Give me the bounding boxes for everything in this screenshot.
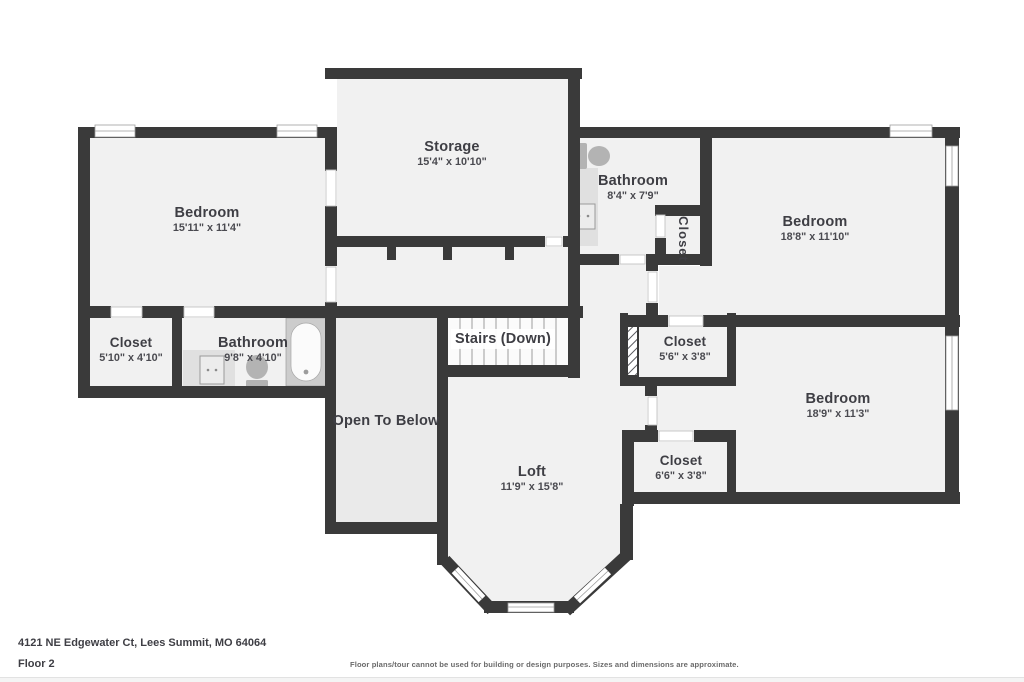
floor-plan-drawing (0, 0, 1024, 682)
floor-hallway-top (337, 247, 568, 307)
floor-bedroom-3 (735, 317, 945, 492)
floor-label: Floor 2 (18, 658, 55, 670)
window-icon (946, 336, 958, 410)
bottom-divider (0, 677, 1024, 682)
floor-bedroom-3-alcove (657, 385, 735, 432)
door-bathroom-1 (620, 255, 645, 264)
window-icon (277, 125, 317, 137)
toilet-icon (246, 355, 268, 388)
floor-open-to-below (336, 318, 437, 522)
floor-loft (448, 377, 622, 608)
window-icon (946, 146, 958, 186)
room-floors (90, 78, 945, 608)
floor-plan-page: Bedroom 15'11" x 11'4" Storage 15'4" x 1… (0, 0, 1024, 682)
door-bedroom-3 (648, 397, 657, 425)
door-closet-3 (659, 431, 693, 441)
floor-closet-3 (634, 442, 727, 492)
disclaimer-text: Floor plans/tour cannot be used for buil… (350, 660, 739, 669)
door-closet-1 (111, 307, 142, 317)
door-bedroom-1 (326, 267, 336, 302)
door-storage-bedroom-1 (326, 170, 336, 206)
floor-bedroom-1 (90, 137, 325, 307)
property-address: 4121 NE Edgewater Ct, Lees Summit, MO 64… (18, 637, 266, 649)
floor-storage (337, 78, 568, 236)
door-closet-hall (656, 215, 665, 237)
floor-closet-2 (638, 325, 727, 377)
door-closet-2 (669, 316, 703, 326)
bathtub-icon (286, 318, 326, 386)
window-icon (95, 125, 135, 137)
door-storage-hall (546, 237, 562, 246)
floor-bedroom-2-alcove (659, 266, 945, 316)
door-bathroom-2 (184, 307, 214, 317)
window-icon (890, 125, 932, 137)
door-bedroom-2 (648, 272, 657, 302)
floor-closet-1 (90, 318, 172, 386)
vanity-sink-icon (183, 350, 235, 387)
